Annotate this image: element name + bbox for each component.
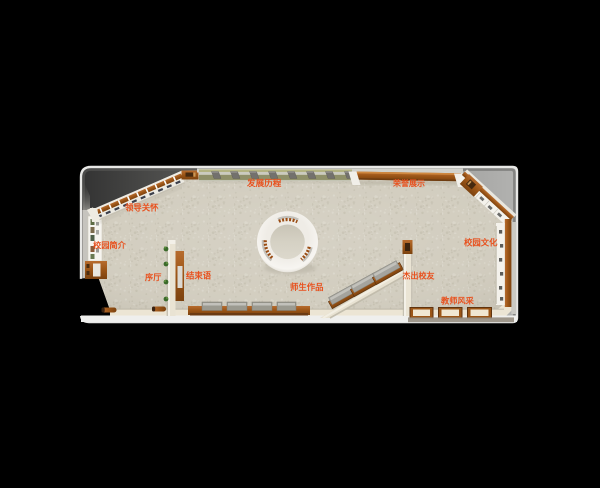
- svg-text:荣誉展示: 荣誉展示: [392, 178, 425, 188]
- svg-text:发展历程: 发展历程: [246, 177, 282, 188]
- svg-text:序厅: 序厅: [145, 272, 161, 282]
- svg-text:结束语: 结束语: [186, 271, 212, 281]
- svg-text:杰出校友: 杰出校友: [403, 271, 435, 281]
- svg-text:领导关怀: 领导关怀: [125, 203, 159, 213]
- svg-text:校园文化: 校园文化: [464, 238, 498, 248]
- svg-text:师生作品: 师生作品: [290, 282, 324, 292]
- svg-text:教师风采: 教师风采: [440, 296, 475, 306]
- svg-text:校园简介: 校园简介: [93, 240, 127, 250]
